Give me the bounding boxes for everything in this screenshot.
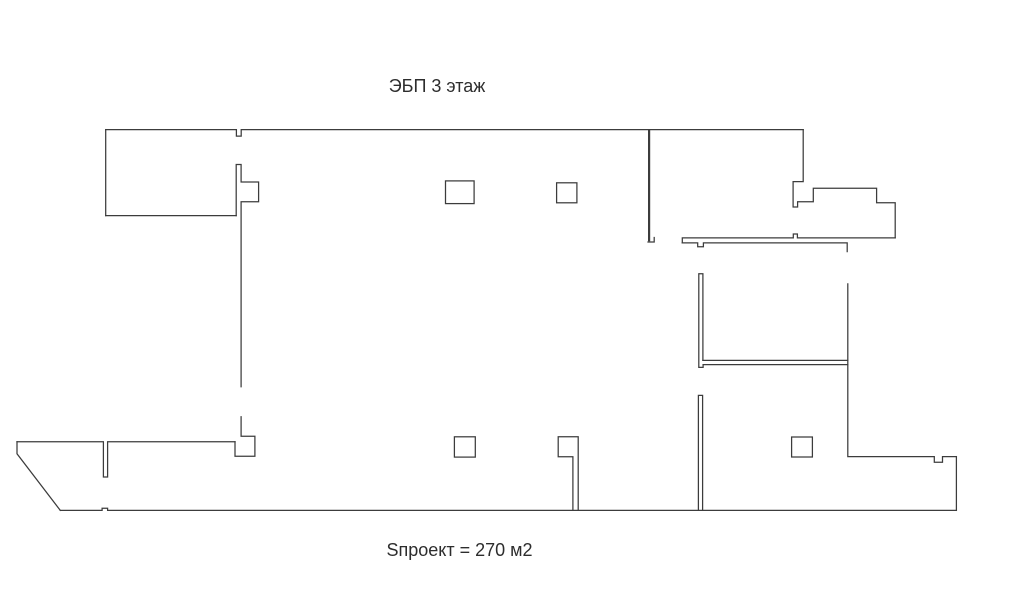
svg-text:ЭБП 3 этаж: ЭБП 3 этаж xyxy=(389,76,486,96)
svg-text:Sпроект = 270 м2: Sпроект = 270 м2 xyxy=(386,540,532,560)
